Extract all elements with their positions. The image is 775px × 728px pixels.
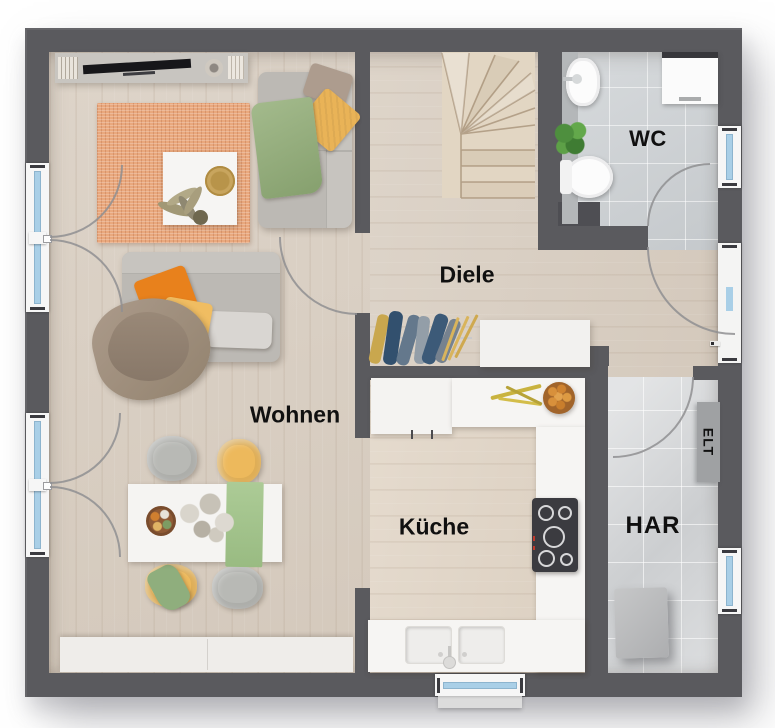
room-label-elt: ELT xyxy=(701,428,717,456)
sofa-right xyxy=(258,72,352,228)
window-hardware xyxy=(722,550,737,553)
window-glass xyxy=(726,556,733,606)
cabinet-handle xyxy=(431,430,433,439)
burner xyxy=(560,553,573,566)
window-hardware xyxy=(722,609,737,612)
window-glass xyxy=(443,682,517,689)
terrace-window-2 xyxy=(26,413,49,557)
room-label-kueche: Küche xyxy=(399,514,469,541)
wc-plant xyxy=(553,120,591,158)
burner xyxy=(538,505,554,521)
window-hardware xyxy=(722,183,737,186)
dining-chair-yellow-2 xyxy=(145,564,197,607)
sink-faucet xyxy=(443,656,456,669)
window-hardware xyxy=(437,678,440,693)
blanket-green xyxy=(250,97,323,200)
door-frame-mark xyxy=(722,358,737,361)
dining-chair-gray-1 xyxy=(147,436,197,481)
food-bowl xyxy=(146,506,176,536)
kitchen-window xyxy=(435,674,525,696)
sink-knob xyxy=(462,652,467,657)
door-handle xyxy=(710,341,720,346)
sink-basin xyxy=(458,626,505,664)
window-hardware xyxy=(30,415,45,418)
wardrobe-cabinet xyxy=(480,320,590,367)
room-label-har: HAR xyxy=(626,512,681,540)
boiler-vent xyxy=(679,97,701,101)
wc-boiler xyxy=(662,52,718,104)
fruit-bowl xyxy=(543,382,575,414)
sink-knob xyxy=(438,652,443,657)
coffee-table xyxy=(163,152,237,225)
door-glass xyxy=(726,287,733,311)
elt-panel: ELT xyxy=(697,402,720,482)
tv-sideboard xyxy=(55,53,248,83)
faucet-knob xyxy=(572,74,582,84)
toilet-cistern xyxy=(560,160,572,194)
wall-stub-kueche xyxy=(589,346,609,366)
wc-toilet xyxy=(565,156,613,198)
boiler-top-strip xyxy=(662,52,718,58)
window-handle xyxy=(29,479,46,491)
window-hardware xyxy=(30,307,45,310)
wc-window xyxy=(718,126,741,188)
wall-wohnen-diele-upper xyxy=(355,52,370,233)
wall-har-top xyxy=(693,366,718,380)
sofa-bottom xyxy=(122,252,280,362)
har-window xyxy=(718,548,741,614)
window-handle xyxy=(29,232,46,244)
dining-chair-gray-2 xyxy=(212,566,263,609)
room-label-wc: WC xyxy=(629,126,667,152)
window-hardware xyxy=(722,128,737,131)
burner xyxy=(543,526,565,548)
books-stack-left xyxy=(58,57,78,79)
cushion-white xyxy=(205,311,272,349)
wc-sink xyxy=(566,58,600,106)
cooktop xyxy=(532,498,578,572)
burner xyxy=(558,506,572,520)
floorplan-building: ELT xyxy=(25,28,742,697)
kitchen-counter-top xyxy=(452,378,585,427)
window-hardware xyxy=(30,165,45,168)
door-frame-mark xyxy=(722,245,737,248)
terrace-window-1 xyxy=(26,163,49,312)
gold-tray xyxy=(205,166,235,196)
plant-pot xyxy=(193,210,208,225)
cooktop-control xyxy=(533,536,535,541)
floorplan-page: ELT xyxy=(0,0,775,728)
cabinet-handle xyxy=(411,430,413,439)
sideboard-bottom xyxy=(60,637,353,672)
wall-wc-bottom xyxy=(538,226,648,250)
room-label-wohnen: Wohnen xyxy=(250,402,340,429)
window-hardware xyxy=(30,552,45,555)
entry-door xyxy=(718,243,741,363)
books-stack-right xyxy=(228,56,244,79)
room-label-diele: Diele xyxy=(440,262,495,289)
sideboard-divider xyxy=(207,639,208,670)
flower-bouquet xyxy=(176,490,238,546)
dining-chair-yellow-1 xyxy=(217,439,261,484)
tv-stand xyxy=(123,71,155,76)
sofa-back-cushions xyxy=(122,252,280,274)
window-hardware xyxy=(520,678,523,693)
cooktop-control xyxy=(533,546,535,550)
kitchen-counter-bottom xyxy=(368,620,585,672)
washing-machine xyxy=(614,587,669,658)
burner xyxy=(538,550,555,567)
decor-dish xyxy=(205,59,223,77)
dining-table xyxy=(128,484,282,562)
wall-kueche-har xyxy=(585,366,608,673)
window-glass xyxy=(726,134,733,180)
kitchen-tall-cabinet xyxy=(371,378,452,434)
